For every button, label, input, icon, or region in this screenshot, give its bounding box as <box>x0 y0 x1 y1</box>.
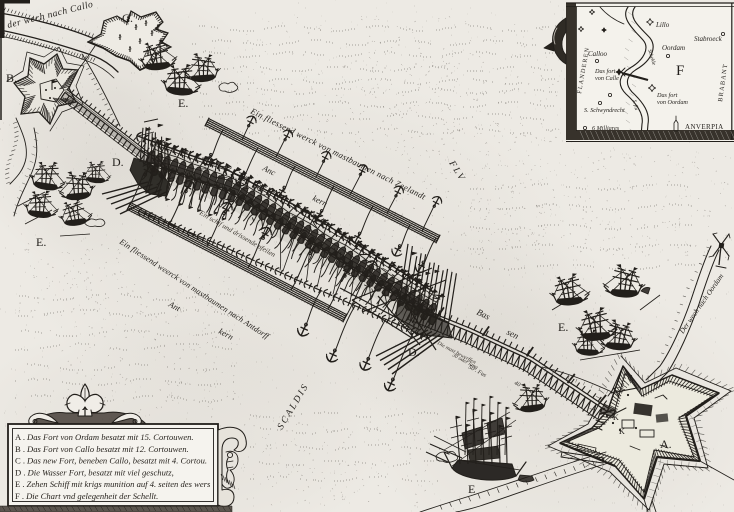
svg-text:A .Das Fort von Ordam besatzt: A .Das Fort von Ordam besatzt mit 15. Co… <box>15 432 194 442</box>
svg-text:C.: C. <box>122 11 133 25</box>
svg-text:S. Schwyndrecht: S. Schwyndrecht <box>584 107 625 114</box>
svg-text:E.: E. <box>36 235 46 249</box>
svg-text:K: K <box>613 413 619 422</box>
svg-text:Calloo: Calloo <box>588 50 608 58</box>
svg-text:Das fort: Das fort <box>594 68 616 75</box>
svg-text:F: F <box>676 63 684 79</box>
svg-text:E.: E. <box>178 96 188 110</box>
svg-text:B.: B. <box>6 71 17 85</box>
svg-text:E.: E. <box>558 320 568 334</box>
svg-text:E .Zehen Schiff mit krigs muni: E .Zehen Schiff mit krigs munition auf 4… <box>15 479 211 489</box>
svg-text:A.: A. <box>660 437 672 451</box>
svg-text:E: E <box>468 482 475 496</box>
svg-text:Oordam: Oordam <box>662 44 685 52</box>
svg-text:ANVERPIA: ANVERPIA <box>685 123 724 131</box>
svg-text:F .Die Chart vnd gelegenheit d: F .Die Chart vnd gelegenheit der Schellt… <box>15 491 158 501</box>
svg-text:Lillo: Lillo <box>655 21 670 29</box>
svg-text:C .Das new Fort, beneben Callo: C .Das new Fort, beneben Callo, besatzt … <box>15 456 207 466</box>
svg-text:K: K <box>619 427 625 436</box>
svg-text:Stabroeck: Stabroeck <box>694 35 723 43</box>
svg-text:D.: D. <box>408 345 420 359</box>
svg-text:B .Das Fort von Callo besatzt: B .Das Fort von Callo besatzt mit 12. Co… <box>15 444 189 454</box>
svg-text:D .Die Wasser Fort, besatzt mi: D .Die Wasser Fort, besatzt mit viel ges… <box>15 467 174 477</box>
svg-text:von Calle: von Calle <box>595 75 619 82</box>
svg-text:6 Milliares: 6 Milliares <box>592 125 620 132</box>
svg-text:von Oordam: von Oordam <box>657 99 688 106</box>
svg-text:D.: D. <box>112 155 124 169</box>
svg-text:Das fort: Das fort <box>656 92 678 99</box>
